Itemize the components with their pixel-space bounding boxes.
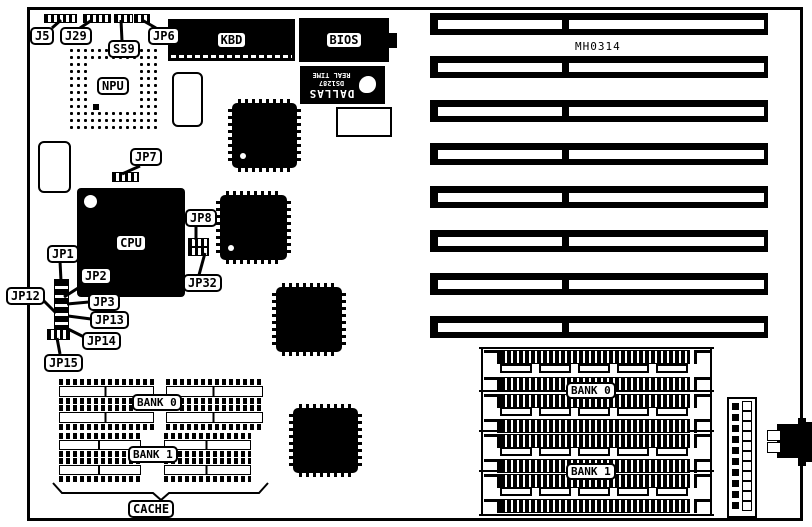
rtc-model: DS1287 <box>319 80 344 88</box>
isa-slot <box>430 230 768 252</box>
jumper-j29 <box>83 14 111 23</box>
callout-jp32: JP32 <box>183 274 222 292</box>
kbd-label: KBD <box>216 31 248 49</box>
power-pin-socket <box>742 431 752 441</box>
empty-socket <box>336 107 392 137</box>
cache-socket <box>164 458 251 482</box>
rtc-type: REAL TIME <box>313 71 351 80</box>
simm-clip <box>694 434 710 448</box>
isa-slot <box>430 316 768 338</box>
jumper-column <box>54 279 69 332</box>
din-pin-block <box>767 430 781 441</box>
jumper-jp6 <box>134 14 150 23</box>
cpu-label: CPU <box>115 234 147 252</box>
simm-clip <box>484 459 500 473</box>
jumper-jp32 <box>188 247 209 256</box>
simm-clip <box>694 377 710 391</box>
simm-clip <box>484 350 500 364</box>
din-pin-block <box>767 442 781 453</box>
jumper-j5 <box>44 14 77 23</box>
simm-bank0-label: BANK 0 <box>566 382 616 399</box>
power-pin-socket <box>742 491 752 501</box>
qfp-chip <box>276 287 342 352</box>
simm-clip <box>694 350 710 364</box>
motherboard-diagram: NPU KBD BIOS DALLAS DS1287 REAL TIME <box>0 0 812 527</box>
kbd-socket-dashes <box>171 55 292 58</box>
power-pin <box>732 480 739 487</box>
power-pin <box>732 425 739 432</box>
simm-bank1-label: BANK 1 <box>566 463 616 480</box>
callout-jp8: JP8 <box>185 209 217 227</box>
callout-j5: J5 <box>30 27 54 45</box>
power-pin <box>732 414 739 421</box>
part-number: MH0314 <box>575 40 621 53</box>
cache-label: CACHE <box>128 500 174 518</box>
callout-jp2: JP2 <box>80 267 112 285</box>
rtc-brand: DALLAS <box>309 88 355 100</box>
simm-clip <box>484 499 500 513</box>
dallas-logo <box>359 77 376 94</box>
bios-chip: BIOS <box>299 18 389 62</box>
simm-clip <box>694 499 710 513</box>
simm-contact-row <box>500 447 688 456</box>
simm-rail <box>710 347 712 516</box>
isa-slot <box>430 186 768 208</box>
power-pin-socket <box>742 441 752 451</box>
bios-tab <box>389 33 397 48</box>
crystal <box>172 72 203 127</box>
power-pin-socket <box>742 421 752 431</box>
callout-j29: J29 <box>60 27 92 45</box>
simm-clip <box>484 377 500 391</box>
power-pin <box>732 436 739 443</box>
power-pin-socket <box>742 461 752 471</box>
callout-jp14: JP14 <box>82 332 121 350</box>
callout-jp13: JP13 <box>90 311 129 329</box>
simm-clip <box>694 394 710 408</box>
callout-s59: S59 <box>108 40 140 58</box>
simm-socket <box>500 350 690 364</box>
callout-jp6: JP6 <box>148 27 180 45</box>
isa-slot <box>430 273 768 295</box>
simm-socket <box>500 419 690 433</box>
simm-clip <box>694 474 710 488</box>
simm-clip <box>484 434 500 448</box>
callout-jp7: JP7 <box>130 148 162 166</box>
crystal <box>38 141 71 193</box>
simm-clip <box>484 394 500 408</box>
power-pin-socket <box>742 481 752 491</box>
jumper-jp7 <box>112 172 139 182</box>
cache-bank0-label: BANK 0 <box>132 394 182 411</box>
power-pin <box>732 502 739 509</box>
isa-slot <box>430 100 768 122</box>
power-pin <box>732 491 739 498</box>
simm-rail <box>481 347 483 516</box>
callout-jp3: JP3 <box>88 293 120 311</box>
kbd-chip: KBD <box>168 19 295 61</box>
qfp-chip <box>220 195 287 260</box>
simm-socket <box>500 499 690 513</box>
simm-contact-row <box>500 364 688 373</box>
simm-contact-row <box>500 407 688 416</box>
simm-socket <box>500 434 690 448</box>
callout-jp12: JP12 <box>6 287 45 305</box>
power-pin <box>732 458 739 465</box>
jumper-s59 <box>114 14 133 23</box>
power-pin-socket <box>742 411 752 421</box>
qfp-chip <box>293 408 358 473</box>
npu-label: NPU <box>97 77 129 95</box>
cpu-pin1-mark <box>84 195 97 208</box>
simm-clip <box>694 419 710 433</box>
npu-pin1-mark <box>93 104 99 110</box>
power-pin <box>732 403 739 410</box>
isa-slot <box>430 143 768 165</box>
power-pin-socket <box>742 501 752 511</box>
simm-clip <box>484 474 500 488</box>
power-connector <box>727 397 757 518</box>
jumper-jp8 <box>188 238 209 247</box>
qfp-chip <box>232 103 297 168</box>
simm-clip <box>484 419 500 433</box>
simm-frame-line <box>479 514 714 516</box>
callout-jp15: JP15 <box>44 354 83 372</box>
bios-label: BIOS <box>325 31 364 49</box>
simm-frame-line <box>479 347 714 349</box>
isa-slot <box>430 56 768 78</box>
power-pin <box>732 469 739 476</box>
keyboard-din-connector <box>805 422 812 462</box>
power-pin-socket <box>742 451 752 461</box>
jumper-jp15 <box>47 329 70 340</box>
rtc-chip: DALLAS DS1287 REAL TIME <box>300 66 385 104</box>
power-pin-socket <box>742 471 752 481</box>
power-pin <box>732 447 739 454</box>
cache-bank1-label: BANK 1 <box>128 446 178 463</box>
power-pin-socket <box>742 401 752 411</box>
simm-contact-row <box>500 487 688 496</box>
simm-clip <box>694 459 710 473</box>
npu-socket: NPU <box>66 45 160 133</box>
isa-slot <box>430 13 768 35</box>
callout-jp1: JP1 <box>47 245 79 263</box>
